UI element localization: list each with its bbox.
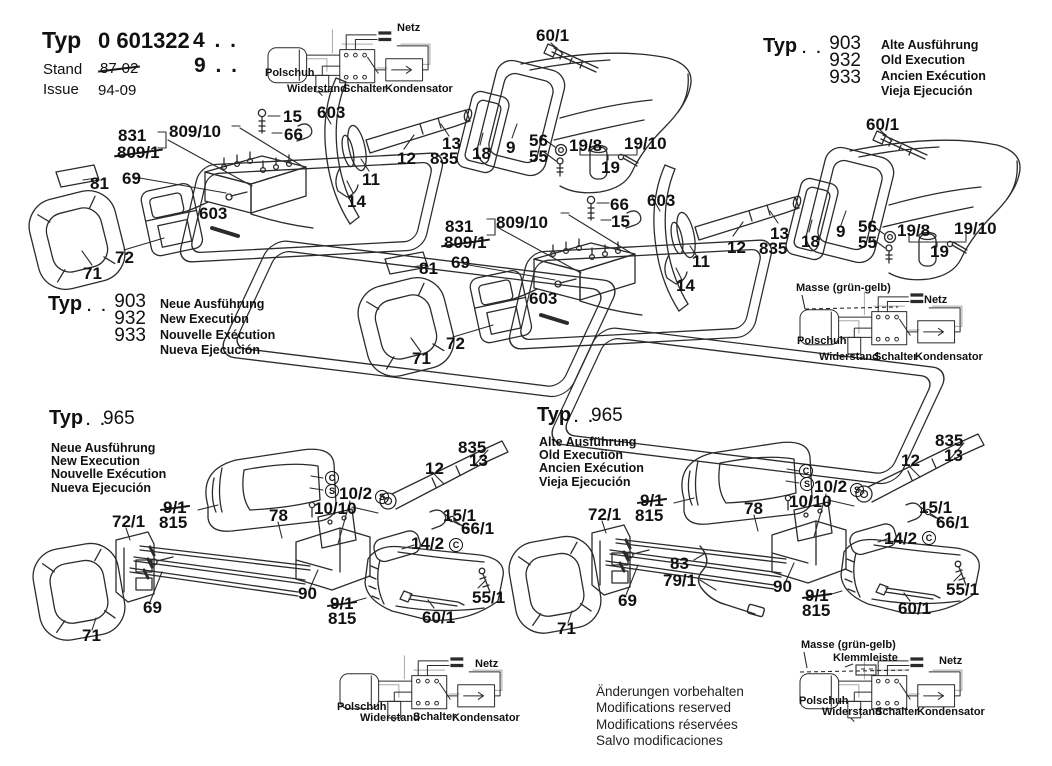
part-label-66: 66 xyxy=(610,196,629,213)
part-label-79-1: 79/1 xyxy=(663,572,696,589)
part-label-815: 815 xyxy=(802,602,830,619)
part-label-69: 69 xyxy=(451,254,470,271)
part-label-55: 55 xyxy=(858,234,877,251)
circle-mark-s: S xyxy=(800,477,814,491)
part-label-603: 603 xyxy=(529,290,557,307)
part-label-19-8: 19/8 xyxy=(897,222,930,239)
type-block-mid-left: Typ . . 903 932 933 Neue Ausführung New … xyxy=(48,292,308,362)
stand-value: 87-02 xyxy=(100,60,138,77)
part-label-60-1: 60/1 xyxy=(422,609,455,626)
model-bold: 322 xyxy=(153,28,190,53)
wire-label-kondensator: Kondensator xyxy=(915,352,983,363)
execution-labels: Alte Ausführung Old Execution Ancien Exé… xyxy=(881,38,986,99)
wire-label-widerstand: Widerstand xyxy=(360,713,420,724)
part-label-10-2: 10/2 xyxy=(339,485,372,502)
part-label-19: 19 xyxy=(930,243,949,260)
execution-es: Nueva Ejecución xyxy=(160,343,275,358)
part-label-60-1: 60/1 xyxy=(898,600,931,617)
part-label-12: 12 xyxy=(425,460,444,477)
part-label-55-1: 55/1 xyxy=(946,581,979,598)
part-label-81: 81 xyxy=(90,175,109,192)
part-label-19: 19 xyxy=(601,159,620,176)
part-label-69: 69 xyxy=(618,592,637,609)
wire-label-masse-grün-gelb-: Masse (grün-gelb) xyxy=(796,283,891,294)
wire-label-netz: Netz xyxy=(475,659,498,670)
execution-fr: Nouvelle Exécution xyxy=(160,328,275,343)
part-label-66-1: 66/1 xyxy=(461,520,494,537)
typ-label: Typ xyxy=(48,294,82,314)
wire-label-widerstand: Widerstand xyxy=(287,84,347,95)
part-label-66-1: 66/1 xyxy=(936,514,969,531)
wire-label-schalter: Schalter xyxy=(343,84,386,95)
execution-labels: Alte Ausführung Old Execution Ancien Exé… xyxy=(539,436,644,489)
part-label-19-8: 19/8 xyxy=(569,137,602,154)
wire-label-netz: Netz xyxy=(939,656,962,667)
wire-label-widerstand: Widerstand xyxy=(819,352,879,363)
wire-label-kondensator: Kondensator xyxy=(385,84,453,95)
part-label-19-10: 19/10 xyxy=(624,135,667,152)
part-label-13: 13 xyxy=(944,447,963,464)
part-label-809-10: 809/10 xyxy=(496,214,548,231)
wire-label-schalter: Schalter xyxy=(413,712,456,723)
part-label-66: 66 xyxy=(284,126,303,143)
part-label-15: 15 xyxy=(283,108,302,125)
execution-es: Nueva Ejecución xyxy=(51,482,166,495)
execution-es: Vieja Ejecución xyxy=(881,84,986,99)
model: 933 xyxy=(98,327,146,344)
part-label-71: 71 xyxy=(412,350,431,367)
model-numbers: 903 932 933 xyxy=(813,35,861,86)
part-label-835: 835 xyxy=(430,150,458,167)
type-block-top-right: Typ . . 903 932 933 Alte Ausführung Old … xyxy=(763,34,1023,104)
part-label-815: 815 xyxy=(328,610,356,627)
execution-en: Old Execution xyxy=(881,53,986,68)
model: 965 xyxy=(591,406,623,425)
part-label-72: 72 xyxy=(446,335,465,352)
part-label-71: 71 xyxy=(83,265,102,282)
part-label-809-1: 809/1 xyxy=(117,144,160,161)
part-label-603: 603 xyxy=(199,205,227,222)
part-label-14: 14 xyxy=(347,193,366,210)
execution-es: Vieja Ejecución xyxy=(539,476,644,489)
parts-diagram-sheet: 60/1831809/1809/101566603121383518956551… xyxy=(0,0,1052,766)
typ-label: Typ xyxy=(49,408,83,428)
model-numbers: 903 932 933 xyxy=(98,293,146,344)
part-label-18: 18 xyxy=(472,145,491,162)
part-label-55: 55 xyxy=(529,148,548,165)
part-label-72: 72 xyxy=(115,249,134,266)
part-label-809-10: 809/10 xyxy=(169,123,221,140)
wire-label-klemmleiste: Klemmleiste xyxy=(833,653,898,664)
part-label-72-1: 72/1 xyxy=(588,506,621,523)
circle-mark-c: C xyxy=(325,471,339,485)
part-label-12: 12 xyxy=(727,239,746,256)
issue-value: 94-09 xyxy=(98,83,136,99)
circle-mark-s: S xyxy=(850,483,864,497)
wire-label-widerstand: Widerstand xyxy=(822,707,882,718)
part-label-10-2: 10/2 xyxy=(814,478,847,495)
part-label-12: 12 xyxy=(901,452,920,469)
model: 933 xyxy=(813,69,861,86)
stand-label: Stand xyxy=(43,62,82,78)
part-label-14: 14 xyxy=(676,277,695,294)
execution-de: Alte Ausführung xyxy=(881,38,986,53)
part-label-11: 11 xyxy=(362,171,380,188)
model-suffix: 4 . . xyxy=(193,30,238,52)
execution-en: New Execution xyxy=(160,312,275,327)
circle-mark-s: S xyxy=(325,484,339,498)
part-label-71: 71 xyxy=(557,620,576,637)
part-label-55-1: 55/1 xyxy=(472,589,505,606)
part-label-12: 12 xyxy=(397,150,416,167)
part-label-69: 69 xyxy=(143,599,162,616)
typ-label: Typ xyxy=(537,405,571,425)
part-label-60-1: 60/1 xyxy=(536,27,569,44)
part-label-71: 71 xyxy=(82,627,101,644)
note-es: Salvo modificaciones xyxy=(596,733,744,749)
type-block-bottom-mid: Typ . . 965 Alte Ausführung Old Executio… xyxy=(537,405,697,497)
part-label-83: 83 xyxy=(670,555,689,572)
part-label-9: 9 xyxy=(506,139,515,156)
modifications-note: Änderungen vorbehalten Modifications res… xyxy=(596,684,744,749)
title-block: Typ 0 601322 4 . . 9 . . Stand 87-02 Iss… xyxy=(42,28,282,98)
model: 965 xyxy=(103,409,135,428)
part-label-60-1: 60/1 xyxy=(866,116,899,133)
part-label-815: 815 xyxy=(159,514,187,531)
wire-label-netz: Netz xyxy=(924,295,947,306)
type-block-bottom-left: Typ . . 965 Neue Ausführung New Executio… xyxy=(49,408,209,500)
model-prefix: 0 601 xyxy=(98,28,153,53)
issue-label: Issue xyxy=(43,82,79,98)
note-fr: Modifications réservées xyxy=(596,717,744,733)
note-en: Modifications reserved xyxy=(596,700,744,716)
part-label-11: 11 xyxy=(692,253,710,270)
circle-mark-c: C xyxy=(449,538,463,552)
part-label-603: 603 xyxy=(317,104,345,121)
wire-label-masse-grün-gelb-: Masse (grün-gelb) xyxy=(801,640,896,651)
wire-label-schalter: Schalter xyxy=(874,352,917,363)
part-label-9: 9 xyxy=(836,223,845,240)
circle-mark-c: C xyxy=(922,531,936,545)
part-label-831: 831 xyxy=(118,127,146,144)
wire-label-polschuh: Polschuh xyxy=(797,336,847,347)
part-label-15: 15 xyxy=(611,213,630,230)
part-label-835: 835 xyxy=(759,240,787,257)
model-number: 0 601322 xyxy=(98,29,190,52)
part-label-69: 69 xyxy=(122,170,141,187)
part-label-14-2: 14/2 xyxy=(884,530,917,547)
execution-de: Neue Ausführung xyxy=(160,297,275,312)
execution-labels: Neue Ausführung New Execution Nouvelle E… xyxy=(160,297,275,358)
wire-label-netz: Netz xyxy=(397,23,420,34)
execution-fr: Ancien Exécution xyxy=(881,69,986,84)
circle-mark-s: S xyxy=(375,490,389,504)
typ-label: Typ xyxy=(42,28,81,52)
part-label-72-1: 72/1 xyxy=(112,513,145,530)
part-label-19-10: 19/10 xyxy=(954,220,997,237)
circle-mark-c: C xyxy=(799,464,813,478)
part-label-14-2: 14/2 xyxy=(411,535,444,552)
part-label-81: 81 xyxy=(419,260,438,277)
execution-labels: Neue Ausführung New Execution Nouvelle E… xyxy=(51,442,166,495)
part-label-13: 13 xyxy=(469,452,488,469)
part-label-78: 78 xyxy=(744,500,763,517)
execution-fr: Nouvelle Exécution xyxy=(51,468,166,481)
part-label-18: 18 xyxy=(801,233,820,250)
part-label-603: 603 xyxy=(647,192,675,209)
execution-fr: Ancien Exécution xyxy=(539,462,644,475)
wire-label-kondensator: Kondensator xyxy=(917,707,985,718)
terminal-strip xyxy=(856,665,876,675)
part-label-90: 90 xyxy=(298,585,317,602)
typ-label: Typ xyxy=(763,36,797,56)
note-de: Änderungen vorbehalten xyxy=(596,684,744,700)
part-label-815: 815 xyxy=(635,507,663,524)
model-suffix2: 9 . . xyxy=(194,55,239,77)
part-label-90: 90 xyxy=(773,578,792,595)
wire-label-kondensator: Kondensator xyxy=(452,713,520,724)
part-label-78: 78 xyxy=(269,507,288,524)
wire-label-schalter: Schalter xyxy=(875,707,918,718)
part-label-809-1: 809/1 xyxy=(444,234,487,251)
